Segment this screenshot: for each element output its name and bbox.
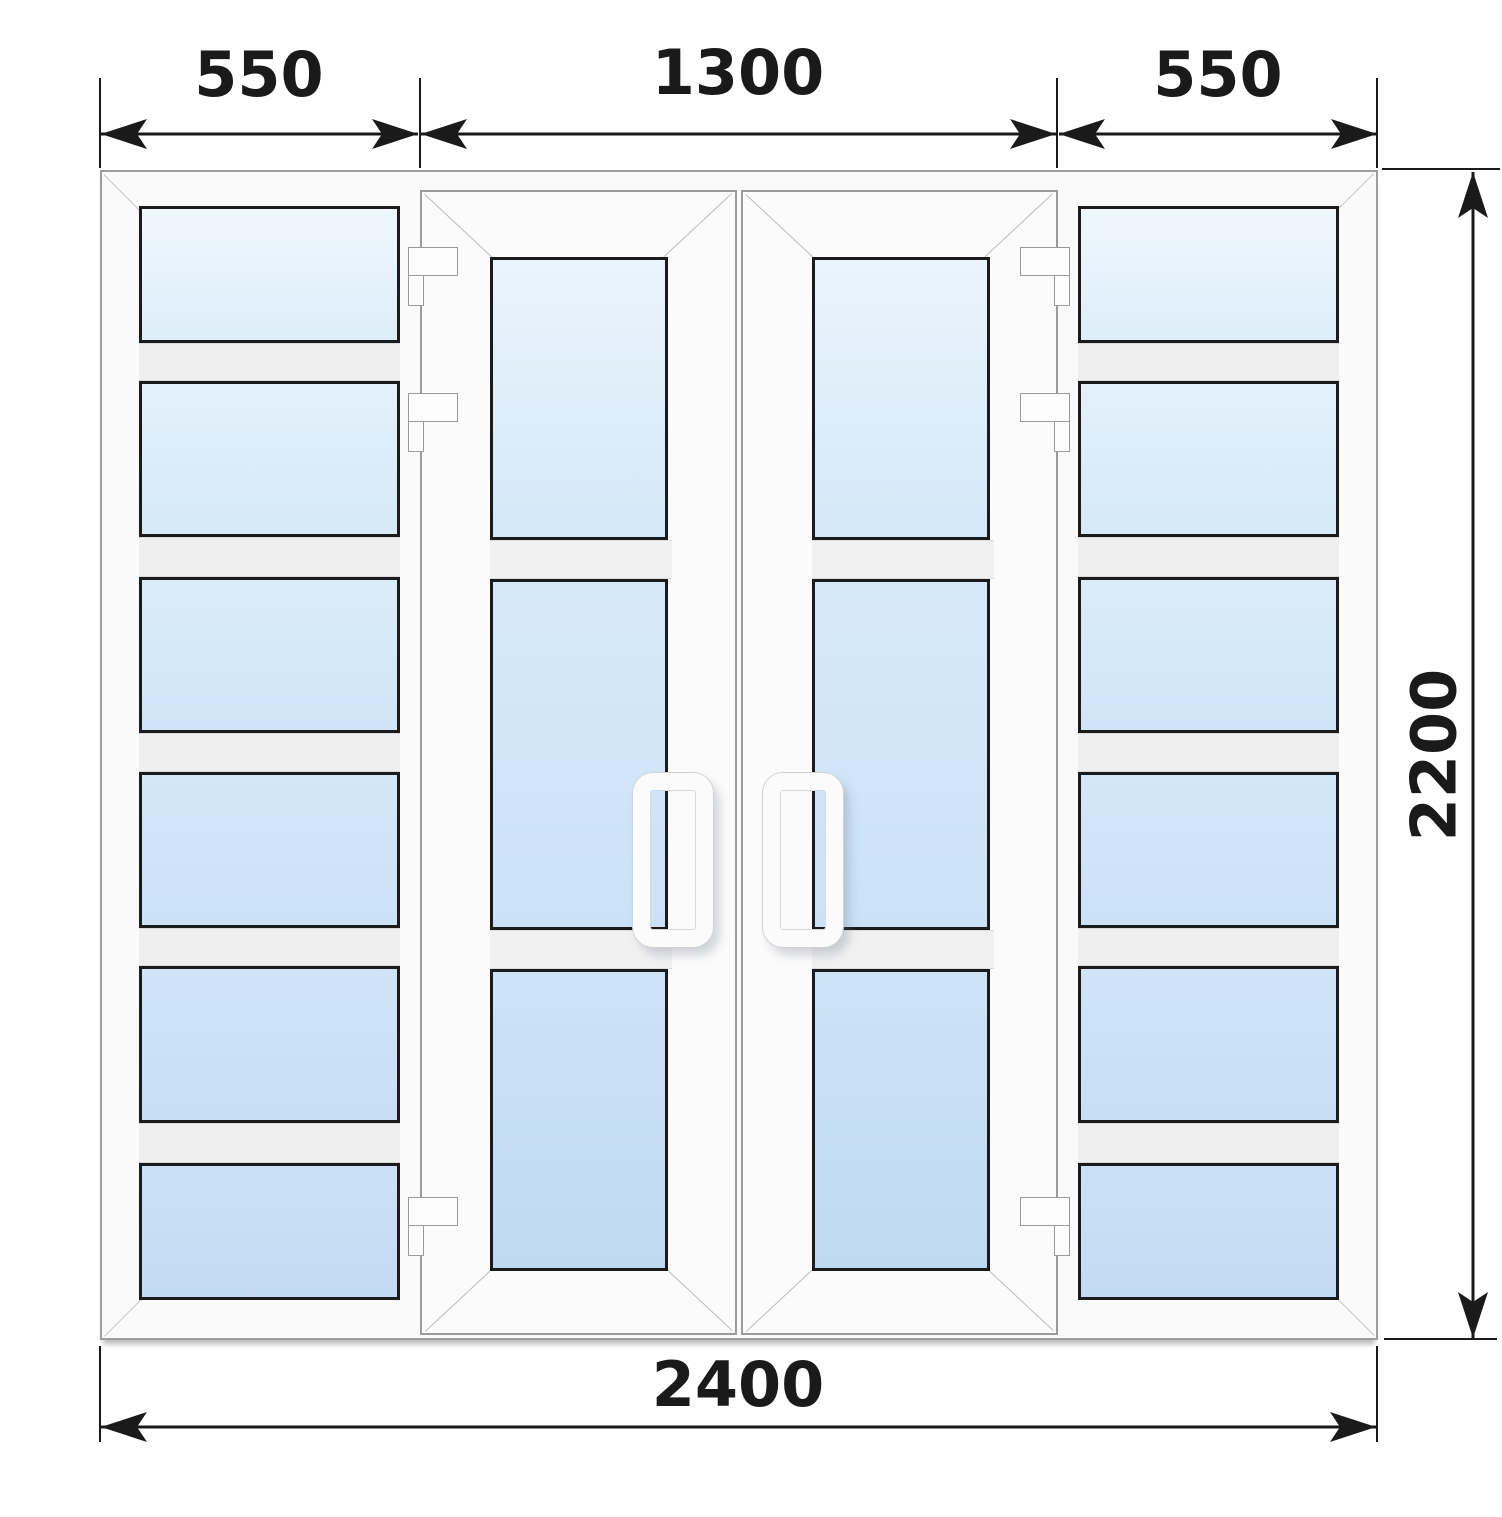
door-handle-left (633, 773, 713, 947)
mullion (1078, 343, 1339, 381)
hinge-icon (1054, 421, 1070, 452)
door-glass-pane (812, 257, 990, 540)
dim-label-right: 2200 (1398, 669, 1471, 842)
door-handle-right (763, 773, 843, 947)
frame-miter (103, 174, 140, 211)
door-miter (425, 1268, 494, 1332)
mullion (139, 343, 400, 381)
hinge-icon (1020, 1197, 1070, 1226)
door-miter (745, 194, 814, 258)
glass-pane (139, 966, 400, 1123)
glass-pane (1078, 577, 1339, 733)
glass-pane (139, 577, 400, 733)
mullion (1078, 537, 1339, 577)
glass-pane (1078, 206, 1339, 343)
door-glass-pane (812, 969, 990, 1271)
hinge-icon (408, 247, 458, 276)
hinge-icon (1054, 275, 1070, 306)
door-miter (663, 193, 732, 257)
frame-miter (104, 1299, 141, 1336)
mullion (139, 928, 400, 966)
dim-label-top-left: 550 (109, 42, 409, 108)
mullion (1078, 928, 1339, 966)
hinge-icon (408, 421, 424, 452)
door-miter (985, 1267, 1054, 1331)
glass-pane (139, 772, 400, 928)
hinge-icon (1020, 247, 1070, 276)
door-miter (746, 1268, 815, 1332)
glass-pane (1078, 381, 1339, 537)
glass-pane (139, 206, 400, 343)
hinge-icon (408, 393, 458, 422)
door-glass-pane (490, 969, 668, 1271)
dim-label-top-right: 550 (1068, 42, 1368, 108)
mullion (139, 1123, 400, 1163)
glass-pane (1078, 1163, 1339, 1300)
glass-pane (1078, 966, 1339, 1123)
mullion (139, 733, 400, 772)
hinge-icon (408, 1197, 458, 1226)
pvc-door-diagram: 550 1300 550 2400 2200 (0, 0, 1502, 1517)
glass-pane (139, 381, 400, 537)
glass-pane (139, 1163, 400, 1300)
door-miter (664, 1267, 733, 1331)
mullion (1078, 1123, 1339, 1163)
door-mullion (490, 540, 672, 579)
mullion (1078, 733, 1339, 772)
hinge-icon (408, 275, 424, 306)
hinge-icon (1020, 393, 1070, 422)
frame-miter (1337, 1299, 1374, 1336)
door-glass-pane (490, 257, 668, 540)
dim-label-bottom: 2400 (563, 1352, 913, 1418)
hinge-icon (408, 1225, 424, 1256)
glass-pane (1078, 772, 1339, 928)
frame-miter (1337, 173, 1374, 210)
dim-label-top-center: 1300 (588, 40, 888, 106)
door-mullion (812, 540, 994, 579)
door-leaf-right (741, 190, 1058, 1335)
hinge-icon (1054, 1225, 1070, 1256)
mullion (139, 537, 400, 577)
door-leaf-left (420, 190, 737, 1335)
